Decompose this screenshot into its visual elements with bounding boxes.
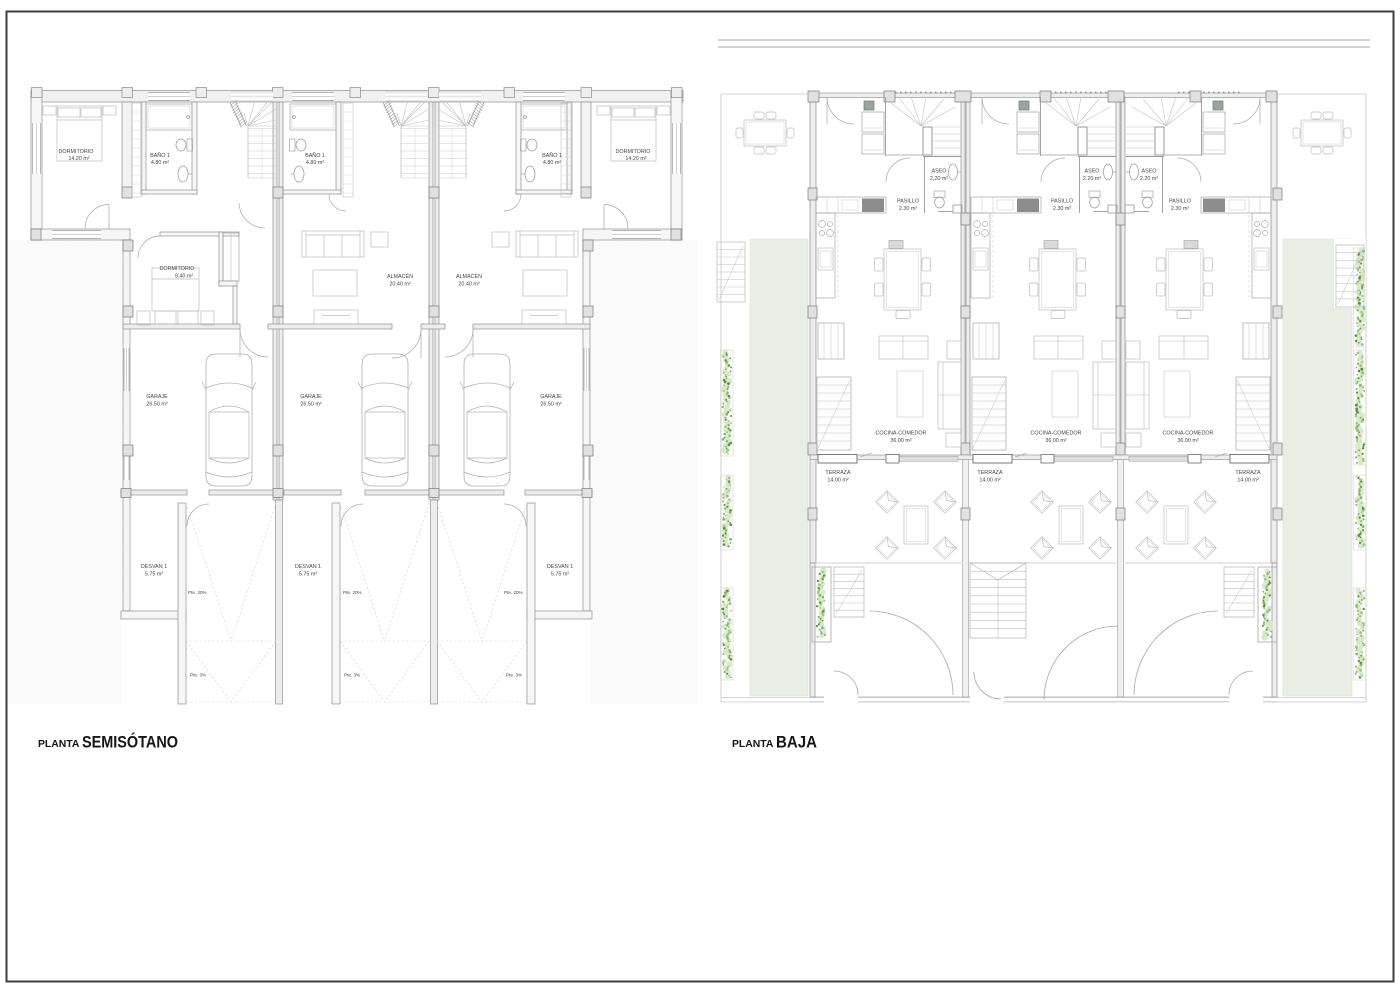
svg-text:2.30 m²: 2.30 m² xyxy=(1171,206,1189,212)
svg-text:DORMITORIO: DORMITORIO xyxy=(616,149,651,155)
svg-text:ASEO: ASEO xyxy=(1085,169,1100,175)
svg-text:DESVAN 1: DESVAN 1 xyxy=(141,564,167,570)
svg-text:TERRAZA: TERRAZA xyxy=(977,470,1003,476)
svg-text:4.80 m²: 4.80 m² xyxy=(306,160,324,166)
svg-text:DESVAN 1: DESVAN 1 xyxy=(295,564,321,570)
svg-text:4.80 m²: 4.80 m² xyxy=(151,160,169,166)
svg-text:PLANTA: PLANTA xyxy=(732,739,774,750)
svg-text:GARAJE: GARAJE xyxy=(146,394,168,400)
svg-text:PLANTA: PLANTA xyxy=(38,739,80,750)
svg-text:BAÑO 1: BAÑO 1 xyxy=(150,152,170,159)
svg-text:TERRAZA: TERRAZA xyxy=(1235,470,1261,476)
svg-text:Pte. 3%: Pte. 3% xyxy=(506,673,522,678)
svg-text:36.00 m²: 36.00 m² xyxy=(890,438,911,444)
svg-text:COCINA-COMEDOR: COCINA-COMEDOR xyxy=(1163,431,1214,437)
svg-text:5.75 m²: 5.75 m² xyxy=(551,572,569,578)
svg-text:Pte. 3%: Pte. 3% xyxy=(190,673,206,678)
svg-text:14.20 m²: 14.20 m² xyxy=(625,156,646,162)
svg-text:26.50 m²: 26.50 m² xyxy=(540,402,561,408)
svg-text:2.30 m²: 2.30 m² xyxy=(899,206,917,212)
svg-text:PASILLO: PASILLO xyxy=(1169,199,1191,205)
svg-text:BAÑO 1: BAÑO 1 xyxy=(542,152,562,159)
svg-text:COCINA-COMEDOR: COCINA-COMEDOR xyxy=(1031,431,1082,437)
svg-text:ASEO: ASEO xyxy=(932,169,947,175)
svg-text:PASILLO: PASILLO xyxy=(897,199,919,205)
svg-text:Pte. 20%: Pte. 20% xyxy=(343,590,362,595)
svg-text:ALMACÉN: ALMACÉN xyxy=(456,273,482,280)
svg-text:14.00 m²: 14.00 m² xyxy=(1237,478,1258,484)
svg-text:4.80 m²: 4.80 m² xyxy=(543,160,561,166)
svg-text:9.40 m²: 9.40 m² xyxy=(175,274,193,280)
svg-text:PASILLO: PASILLO xyxy=(1051,199,1073,205)
svg-text:26.50 m²: 26.50 m² xyxy=(146,402,167,408)
svg-text:2.30 m²: 2.30 m² xyxy=(1053,206,1071,212)
svg-text:14.00 m²: 14.00 m² xyxy=(979,478,1000,484)
svg-text:DORMITORIO: DORMITORIO xyxy=(59,149,94,155)
svg-text:Pte. 20%: Pte. 20% xyxy=(504,590,523,595)
svg-text:2.20 m²: 2.20 m² xyxy=(1140,176,1158,182)
svg-text:20.40 m²: 20.40 m² xyxy=(458,282,479,288)
svg-text:BAJA: BAJA xyxy=(776,734,817,752)
svg-text:TERRAZA: TERRAZA xyxy=(825,470,851,476)
svg-text:GARAJE: GARAJE xyxy=(300,394,322,400)
svg-text:14.20 m²: 14.20 m² xyxy=(68,156,89,162)
svg-text:COCINA-COMEDOR: COCINA-COMEDOR xyxy=(876,431,927,437)
svg-text:BAÑO 1: BAÑO 1 xyxy=(305,152,325,159)
svg-text:14.00 m²: 14.00 m² xyxy=(827,478,848,484)
svg-text:DORMITORIO: DORMITORIO xyxy=(160,266,195,272)
svg-text:SEMISÓTANO: SEMISÓTANO xyxy=(82,733,178,752)
svg-text:20.40 m²: 20.40 m² xyxy=(389,282,410,288)
svg-text:5.75 m²: 5.75 m² xyxy=(145,572,163,578)
svg-text:36.00 m²: 36.00 m² xyxy=(1045,438,1066,444)
svg-text:2.20 m²: 2.20 m² xyxy=(1083,176,1101,182)
svg-text:36.00 m²: 36.00 m² xyxy=(1177,438,1198,444)
svg-text:GARAJE: GARAJE xyxy=(540,394,562,400)
svg-text:ASEO: ASEO xyxy=(1142,169,1157,175)
svg-text:Pte. 3%: Pte. 3% xyxy=(344,673,360,678)
svg-text:DESVAN 1: DESVAN 1 xyxy=(547,564,573,570)
svg-text:ALMACÉN: ALMACÉN xyxy=(387,273,413,280)
svg-text:26.50 m²: 26.50 m² xyxy=(300,402,321,408)
svg-text:5.75 m²: 5.75 m² xyxy=(299,572,317,578)
svg-text:2.20 m²: 2.20 m² xyxy=(930,176,948,182)
svg-text:Pte. 20%: Pte. 20% xyxy=(188,590,207,595)
